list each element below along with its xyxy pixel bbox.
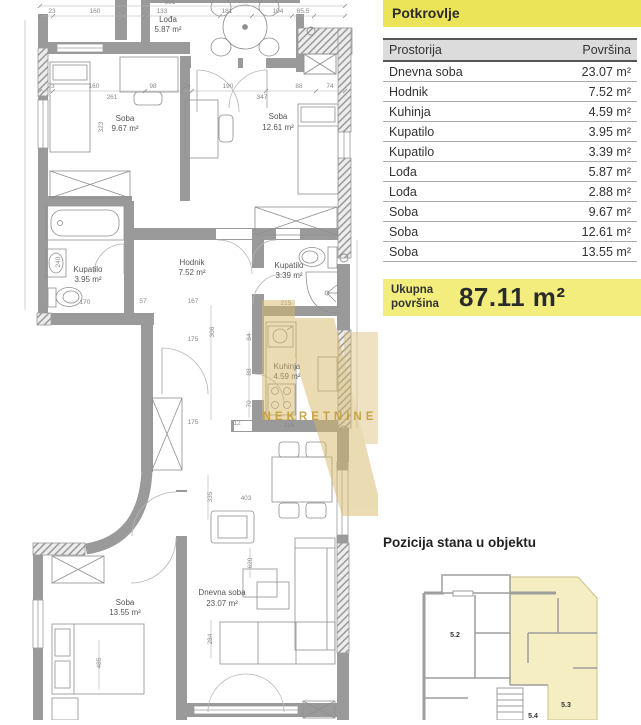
livingroom-furniture bbox=[211, 442, 335, 718]
watermark-text: NEKRETNINE bbox=[263, 411, 378, 423]
building-position-minimap: 5.2 5.3 5.4 bbox=[378, 573, 641, 720]
cell-room: Soba bbox=[383, 242, 531, 262]
dim-label: 531 bbox=[165, 0, 176, 6]
cell-room: Kupatilo bbox=[383, 122, 531, 142]
cell-room: Soba bbox=[383, 202, 531, 222]
cell-room: Kupatilo bbox=[383, 142, 531, 162]
cell-room: Dnevna soba bbox=[383, 61, 531, 82]
total-area-bar: Ukupna površina 87.11 m² bbox=[383, 279, 641, 316]
room-name: Soba bbox=[269, 112, 288, 121]
room-area: 3.39 m² bbox=[275, 271, 302, 280]
table-row: Kuhinja4.59 m² bbox=[383, 102, 637, 122]
room-name: Kupatilo bbox=[275, 261, 304, 270]
room-area: 13.55 m² bbox=[109, 608, 141, 617]
room-area: 23.07 m² bbox=[206, 599, 238, 608]
dim-label: 240 bbox=[55, 256, 62, 267]
room-name: Kupatilo bbox=[74, 265, 103, 274]
total-area-label: Ukupna površina bbox=[391, 284, 439, 312]
dim-label: 323 bbox=[98, 121, 105, 132]
cell-area: 23.07 m² bbox=[531, 61, 637, 82]
cell-area: 3.39 m² bbox=[531, 142, 637, 162]
dim-label: 347 bbox=[257, 94, 268, 101]
dim-label: 216 bbox=[284, 422, 295, 429]
cell-room: Soba bbox=[383, 222, 531, 242]
room-name: Soba bbox=[116, 598, 135, 607]
cell-room: Lođa bbox=[383, 182, 531, 202]
table-header-row: Prostorija Površina bbox=[383, 39, 637, 61]
position-section-title: Pozicija stana u objektu bbox=[383, 535, 536, 550]
room-label-kupatilo2: Kupatilo 3.39 m² bbox=[275, 261, 304, 280]
dim-label: 24 bbox=[183, 83, 191, 90]
dim-label: 160 bbox=[90, 8, 101, 15]
room-area: 5.87 m² bbox=[154, 25, 181, 34]
room-label-kupatilo1: Kupatilo 3.95 m² bbox=[74, 265, 103, 284]
dim-label: 485 bbox=[96, 657, 103, 668]
room-name: Lođa bbox=[159, 15, 177, 24]
dim-label: 175 bbox=[188, 336, 199, 343]
hall-wardrobe bbox=[152, 398, 182, 470]
bathroom2-fixtures bbox=[299, 247, 338, 313]
room-label-soba1: Soba 9.67 m² bbox=[111, 114, 138, 133]
cell-area: 5.87 m² bbox=[531, 162, 637, 182]
dim-label: 98 bbox=[149, 83, 157, 90]
dim-label: 306 bbox=[209, 326, 216, 337]
dim-label: 70 bbox=[246, 400, 253, 408]
cell-room: Lođa bbox=[383, 162, 531, 182]
dim-label: 261 bbox=[107, 94, 118, 101]
table-row: Soba12.61 m² bbox=[383, 222, 637, 242]
dim-label: 181 bbox=[222, 8, 233, 15]
table-row: Lođa5.87 m² bbox=[383, 162, 637, 182]
total-label-line1: Ukupna bbox=[391, 284, 439, 298]
dim-label: 23 bbox=[47, 83, 55, 90]
dim-label: 12 bbox=[233, 420, 241, 427]
floor-plan-area: 531 23 160 133 181 104 85.5 23 160 98 24… bbox=[0, 0, 378, 720]
minimap-unit-54: 5.4 bbox=[528, 713, 538, 720]
dim-label: 170 bbox=[80, 299, 91, 306]
dim-label: 620 bbox=[247, 557, 254, 568]
dim-label: 160 bbox=[89, 83, 100, 90]
col-header-room: Prostorija bbox=[383, 39, 531, 61]
cell-room: Kuhinja bbox=[383, 102, 531, 122]
cell-area: 13.55 m² bbox=[531, 242, 637, 262]
room-area: 3.95 m² bbox=[74, 275, 101, 284]
cell-area: 2.88 m² bbox=[531, 182, 637, 202]
dim-label: 284 bbox=[207, 633, 214, 644]
dim-label: 167 bbox=[188, 298, 199, 305]
room-name: Hodnik bbox=[180, 258, 206, 267]
table-row: Hodnik7.52 m² bbox=[383, 82, 637, 102]
dim-label: 23 bbox=[48, 8, 56, 15]
dim-label: 74 bbox=[326, 83, 334, 90]
room-area-table: Prostorija Površina Dnevna soba23.07 m² … bbox=[383, 38, 637, 262]
dim-label: 84 bbox=[246, 333, 253, 341]
bedroom2-furniture bbox=[185, 100, 338, 235]
room-label-soba3: Soba 13.55 m² bbox=[109, 598, 141, 617]
table-row: Kupatilo3.95 m² bbox=[383, 122, 637, 142]
cell-area: 3.95 m² bbox=[531, 122, 637, 142]
dim-label: 335 bbox=[207, 491, 214, 502]
table-row: Soba13.55 m² bbox=[383, 242, 637, 262]
info-panel: Potkrovlje Prostorija Površina Dnevna so… bbox=[378, 0, 641, 720]
room-label-loggia: Lođa 5.87 m² bbox=[154, 15, 181, 34]
curved-wall bbox=[86, 470, 147, 549]
dim-label: 403 bbox=[241, 495, 252, 502]
room-name: Dnevna soba bbox=[198, 588, 246, 597]
dim-label: 104 bbox=[273, 8, 284, 15]
dim-label: 190 bbox=[223, 83, 234, 90]
room-area: 12.61 m² bbox=[262, 123, 294, 132]
room-name: Soba bbox=[116, 114, 135, 123]
bathroom1-fixtures bbox=[46, 206, 124, 307]
cell-area: 12.61 m² bbox=[531, 222, 637, 242]
dim-label: 85.5 bbox=[297, 8, 310, 15]
cell-area: 9.67 m² bbox=[531, 202, 637, 222]
room-label-hodnik: Hodnik 7.52 m² bbox=[178, 258, 205, 277]
minimap-unit-52: 5.2 bbox=[450, 632, 460, 639]
bedroom3-furniture bbox=[52, 556, 144, 720]
table-row: Kupatilo3.39 m² bbox=[383, 142, 637, 162]
total-label-line2: površina bbox=[391, 298, 439, 312]
dim-label: 133 bbox=[157, 8, 168, 15]
dim-label: 88 bbox=[246, 368, 253, 376]
room-label-dnevna: Dnevna soba 23.07 m² bbox=[198, 588, 246, 608]
dim-label: 88 bbox=[295, 83, 303, 90]
room-area: 7.52 m² bbox=[178, 268, 205, 277]
table-row: Soba9.67 m² bbox=[383, 202, 637, 222]
dim-label: 57 bbox=[139, 298, 147, 305]
room-label-soba2: Soba 12.61 m² bbox=[262, 112, 294, 132]
table-row: Lođa2.88 m² bbox=[383, 182, 637, 202]
col-header-area: Površina bbox=[531, 39, 637, 61]
table-row: Dnevna soba23.07 m² bbox=[383, 61, 637, 82]
floor-plan-drawing: 531 23 160 133 181 104 85.5 23 160 98 24… bbox=[0, 0, 378, 720]
cell-area: 4.59 m² bbox=[531, 102, 637, 122]
dim-label: 175 bbox=[188, 419, 199, 426]
cell-room: Hodnik bbox=[383, 82, 531, 102]
total-area-value: 87.11 m² bbox=[459, 282, 566, 313]
floor-title: Potkrovlje bbox=[383, 0, 641, 27]
cell-area: 7.52 m² bbox=[531, 82, 637, 102]
minimap-unit-53: 5.3 bbox=[561, 702, 571, 709]
room-area: 9.67 m² bbox=[111, 124, 138, 133]
